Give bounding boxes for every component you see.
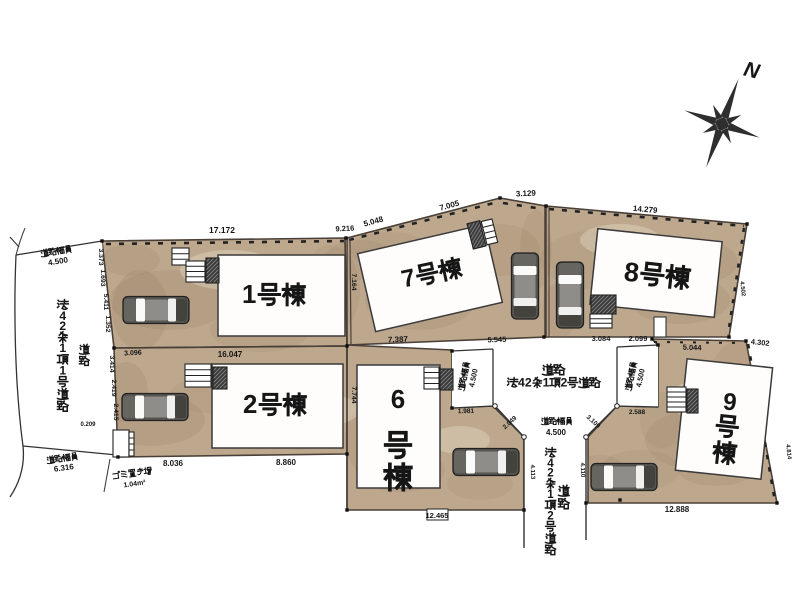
svg-text:2: 2 [547,509,553,522]
svg-text:1: 1 [543,376,550,390]
svg-text:2: 2 [243,391,257,419]
svg-text:2: 2 [547,467,553,480]
svg-text:1.981: 1.981 [458,408,475,416]
svg-text:3.096: 3.096 [124,350,142,358]
svg-text:2.419: 2.419 [110,379,117,396]
svg-text:7.744: 7.744 [350,386,357,403]
svg-text:3.414: 3.414 [108,355,115,372]
svg-text:5.411: 5.411 [102,294,109,311]
svg-text:4.500: 4.500 [546,428,567,437]
svg-text:4.110: 4.110 [579,463,586,479]
svg-text:7.164: 7.164 [350,273,357,290]
svg-text:12.465: 12.465 [426,511,449,520]
svg-text:0.209: 0.209 [80,422,96,428]
svg-text:3.129: 3.129 [516,188,537,198]
svg-text:1: 1 [59,341,66,355]
svg-text:12.888: 12.888 [665,505,690,514]
svg-text:3.084: 3.084 [592,334,612,343]
svg-text:1: 1 [242,281,256,309]
svg-text:2: 2 [59,319,66,333]
svg-text:8.036: 8.036 [163,459,184,468]
svg-text:2.099: 2.099 [629,334,648,343]
svg-text:42: 42 [518,376,532,390]
svg-text:1.693: 1.693 [99,269,106,286]
svg-text:9: 9 [722,388,738,416]
svg-text:4.113: 4.113 [529,465,536,481]
svg-text:17.172: 17.172 [209,225,235,235]
svg-text:9.216: 9.216 [335,224,354,234]
svg-text:6: 6 [391,384,405,414]
svg-text:2: 2 [561,376,568,390]
svg-text:5.545: 5.545 [487,335,506,345]
svg-text:8: 8 [623,257,641,288]
svg-text:7.387: 7.387 [388,335,409,345]
svg-text:16.047: 16.047 [218,350,243,359]
svg-text:8.860: 8.860 [276,458,297,467]
svg-text:2.415: 2.415 [112,403,119,420]
svg-text:1: 1 [59,363,66,377]
svg-text:2.588: 2.588 [629,409,646,416]
svg-text:1: 1 [547,488,554,501]
svg-text:3.373: 3.373 [97,248,104,265]
svg-text:1.352: 1.352 [104,315,111,332]
svg-text:5.044: 5.044 [683,343,703,353]
